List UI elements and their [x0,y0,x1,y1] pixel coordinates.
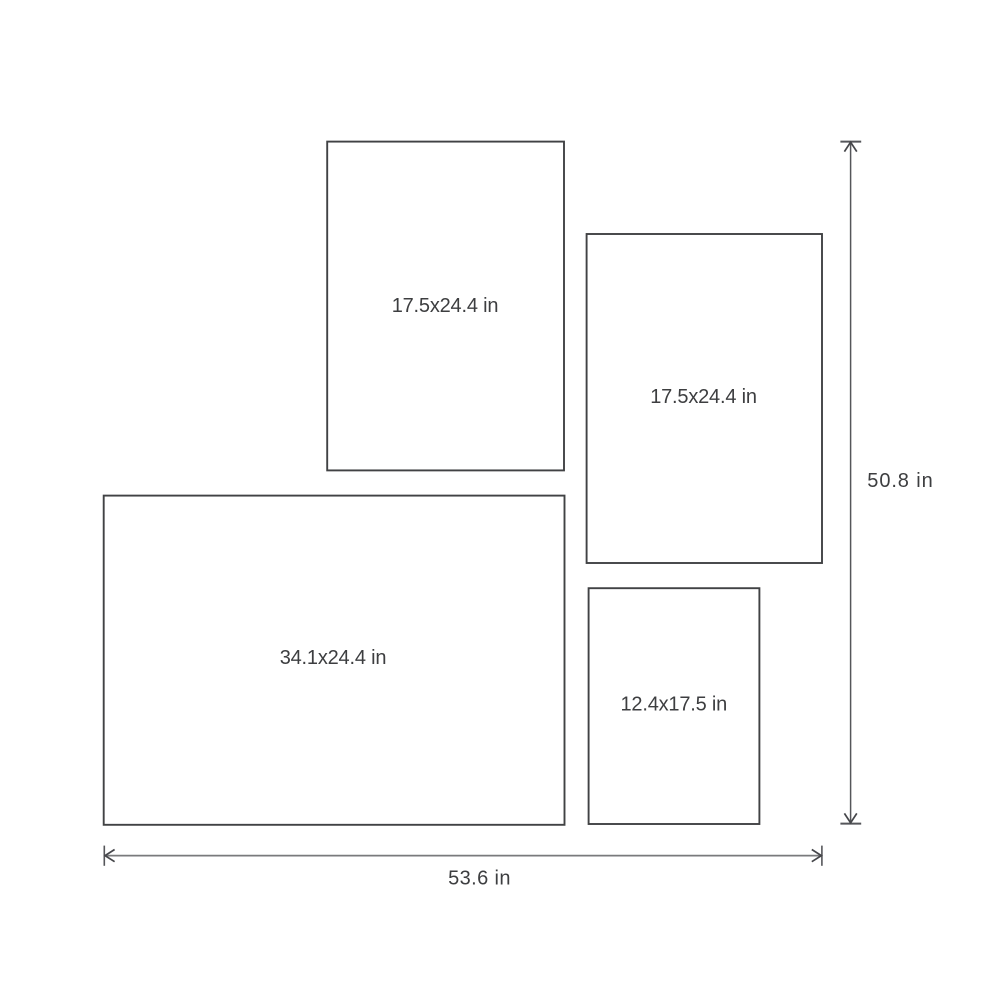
svg-text:12.4x17.5 in: 12.4x17.5 in [621,694,728,716]
svg-text:17.5x24.4 in: 17.5x24.4 in [650,386,757,408]
svg-text:17.5x24.4 in: 17.5x24.4 in [392,295,499,317]
svg-text:53.6 in: 53.6 in [448,868,511,890]
svg-text:50.8 in: 50.8 in [867,470,933,492]
svg-text:34.1x24.4 in: 34.1x24.4 in [280,647,387,669]
